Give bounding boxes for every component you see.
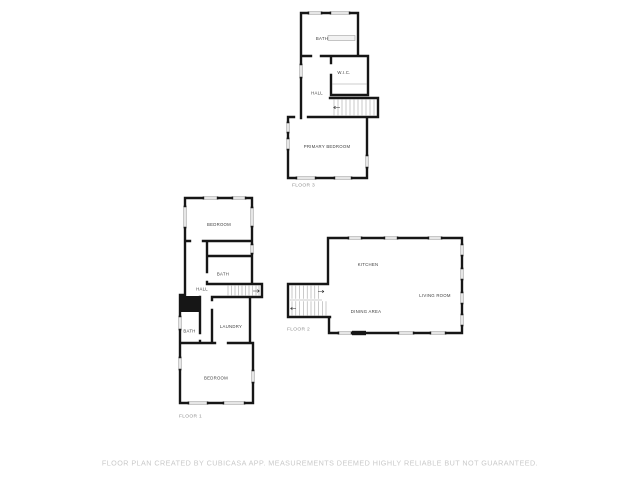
- floor-2-stairs: [290, 286, 326, 316]
- floor-plan-page: BATH W.I.C. HALL PRIMARY BEDROOM FLOOR 3: [0, 0, 640, 480]
- entry-threshold: [352, 331, 366, 335]
- room-label-hall-f3: HALL: [311, 91, 323, 96]
- floor-2-label: FLOOR 2: [287, 327, 310, 333]
- floor-2-walls: [288, 238, 462, 333]
- disclaimer-text: FLOOR PLAN CREATED BY CUBICASA APP. MEAS…: [102, 459, 538, 468]
- room-label-hall-f1: HALL: [196, 287, 208, 292]
- room-label-kitchen: KITCHEN: [358, 262, 379, 267]
- floor-2-plan: KITCHEN LIVING ROOM DINING AREA FLOOR 2: [287, 236, 464, 335]
- floor-3-label: FLOOR 3: [292, 183, 315, 189]
- floor-1-plan: BEDROOM BATH HALL LAUNDRY BATH BEDROOM F…: [178, 196, 262, 419]
- floor-3-stairs: [334, 100, 375, 116]
- room-label-laundry: LAUNDRY: [220, 324, 242, 329]
- chimney: [181, 296, 200, 312]
- room-label-bath-upper: BATH: [217, 272, 229, 277]
- room-label-bedroom-upper: BEDROOM: [207, 222, 231, 227]
- floor-1-label: FLOOR 1: [179, 414, 202, 420]
- room-label-bath-lower: BATH: [183, 329, 195, 334]
- floor-plan-canvas: BATH W.I.C. HALL PRIMARY BEDROOM FLOOR 3: [0, 0, 640, 480]
- room-label-bedroom-lower: BEDROOM: [204, 376, 228, 381]
- room-label-bath-f3: BATH: [316, 36, 328, 41]
- floor-1-stairs: [228, 286, 260, 296]
- room-label-primary-bedroom: PRIMARY BEDROOM: [304, 144, 351, 149]
- floor-3-plan: BATH W.I.C. HALL PRIMARY BEDROOM FLOOR 3: [286, 11, 378, 188]
- bath-vanity: [328, 36, 355, 41]
- room-label-living-room: LIVING ROOM: [419, 293, 451, 298]
- room-label-dining-area: DINING AREA: [351, 309, 381, 314]
- room-label-wic: W.I.C.: [337, 70, 350, 75]
- floor-2-windows: [338, 236, 464, 334]
